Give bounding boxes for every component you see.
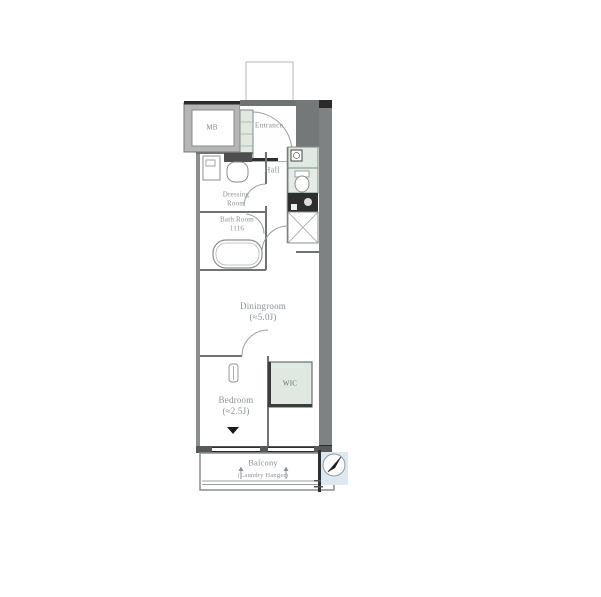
bedroom-door-swing-icon bbox=[242, 330, 268, 356]
vanity-counter bbox=[224, 153, 252, 162]
compass bbox=[321, 452, 348, 485]
bath-door-swing-icon bbox=[246, 214, 264, 234]
bedroom-details bbox=[227, 364, 239, 434]
refrigerator-space bbox=[288, 212, 318, 243]
dressing-door-swing-icon bbox=[244, 184, 266, 206]
shoe-box bbox=[240, 110, 253, 158]
porch-outline bbox=[246, 62, 293, 104]
kitchen-stove bbox=[288, 193, 318, 212]
toilet-icon bbox=[295, 176, 309, 192]
floor-plan: MB Entrance Hall Dressing Room Bath Room… bbox=[0, 0, 601, 597]
balcony-area bbox=[200, 450, 334, 492]
floor-plan-drawing bbox=[0, 0, 601, 597]
washer-space bbox=[288, 147, 318, 168]
toilet-room bbox=[288, 168, 318, 193]
washbasin-icon bbox=[227, 162, 248, 182]
utility-column bbox=[288, 147, 319, 243]
bathtub-icon bbox=[213, 240, 262, 268]
closet bbox=[268, 362, 312, 407]
meter-box bbox=[184, 101, 240, 152]
bathroom-fixtures bbox=[213, 214, 264, 268]
direction-triangle-icon bbox=[227, 427, 239, 434]
washing-machine-icon bbox=[291, 150, 302, 161]
